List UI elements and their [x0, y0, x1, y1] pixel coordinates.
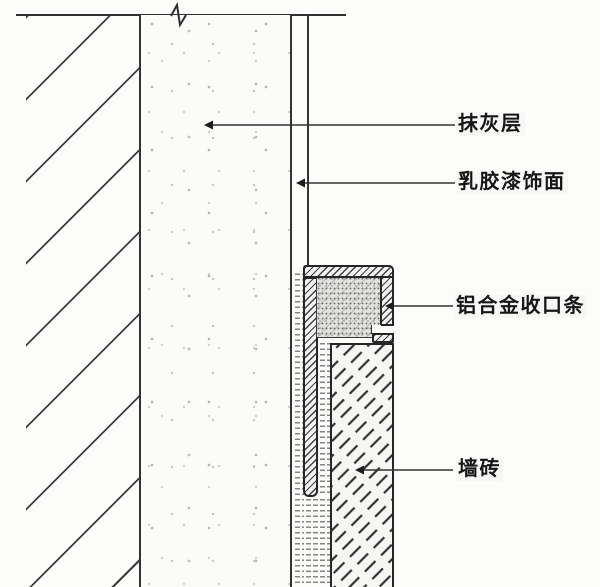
- label-wall-tile: 墙砖: [456, 458, 503, 481]
- wall-section-hatch: [26, 16, 139, 587]
- trim-right-wall: [380, 276, 394, 326]
- arrowhead-paint: [296, 179, 305, 188]
- label-aluminum-trim-strip: 铝合金收口条: [454, 295, 587, 318]
- adhesive-strip-bottom: [304, 497, 330, 587]
- label-latex-paint-finish: 乳胶漆饰面: [456, 171, 568, 194]
- plaster-layer-region: [139, 15, 292, 587]
- adhesive-strip-mid: [318, 343, 330, 497]
- trim-foot-lip: [372, 333, 394, 343]
- tile-hatch-pattern: [332, 345, 392, 587]
- paint-finish-line: [307, 15, 309, 265]
- construction-detail-drawing: 抹灰层 乳胶漆饰面 铝合金收口条 墙砖: [0, 0, 600, 587]
- wall-tile-region: [330, 343, 394, 587]
- label-plaster-layer: 抹灰层: [456, 113, 525, 136]
- trim-top-flange: [303, 265, 394, 278]
